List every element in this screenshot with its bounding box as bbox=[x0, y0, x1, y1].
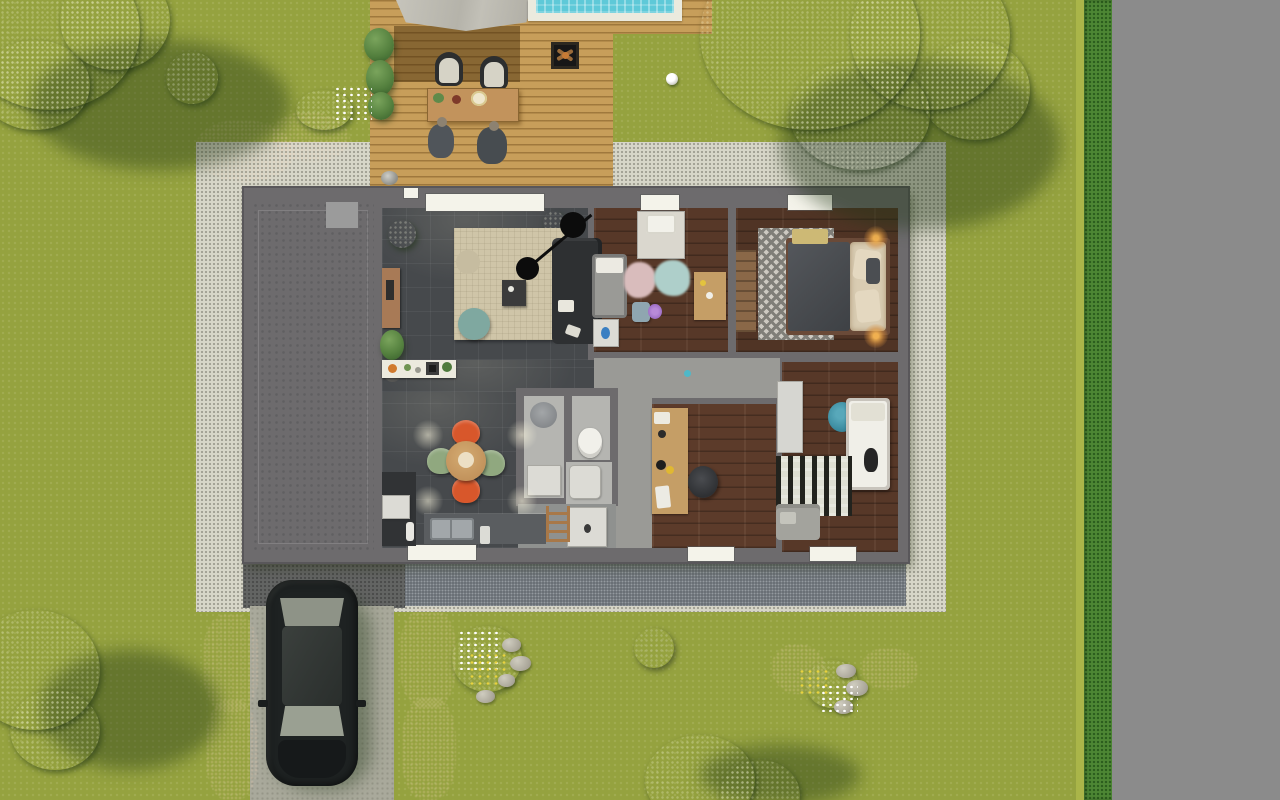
island-bowl-orange bbox=[388, 364, 397, 373]
wardrobe bbox=[778, 382, 802, 452]
fluffy-rug-blue bbox=[654, 260, 690, 296]
bed-bench bbox=[736, 250, 756, 332]
small-bush-top-left bbox=[166, 52, 218, 104]
kids-desk-toy bbox=[706, 292, 713, 299]
plate-pizza bbox=[471, 91, 487, 106]
office-printer bbox=[654, 412, 670, 424]
room-hall-vertical bbox=[614, 398, 652, 548]
bedside-lamp bbox=[864, 226, 888, 250]
kitchen-sink bbox=[430, 518, 474, 540]
island-hob bbox=[426, 362, 439, 375]
window-kitchen bbox=[408, 545, 476, 560]
tree-top-right bbox=[790, 60, 930, 170]
rock bbox=[510, 656, 531, 671]
deck-planter-grass bbox=[364, 28, 394, 62]
car-windshield bbox=[280, 706, 344, 736]
person-seated bbox=[428, 124, 454, 158]
window-office bbox=[688, 547, 734, 561]
desk-item-yellow bbox=[666, 466, 674, 474]
pouf-beige bbox=[456, 250, 480, 274]
toilet bbox=[578, 428, 602, 458]
window-bedroom-kids bbox=[641, 195, 679, 210]
soccer-ball bbox=[666, 73, 678, 85]
car-hood bbox=[278, 740, 346, 778]
bottle bbox=[406, 522, 414, 541]
pool-water bbox=[536, 0, 674, 13]
island-plant bbox=[442, 362, 452, 372]
dining-plate bbox=[458, 452, 474, 468]
office-chair bbox=[688, 466, 718, 498]
lawn-patch-right-of-deck bbox=[613, 34, 712, 142]
single-bed-pillow bbox=[851, 403, 885, 421]
red-shrub-driveway-right bbox=[402, 698, 456, 800]
changing-mat bbox=[646, 214, 676, 234]
loveseat-cushion bbox=[780, 512, 796, 524]
kids-desk-toy bbox=[700, 280, 706, 286]
yellow-throw bbox=[792, 229, 828, 244]
coffee-table-decor bbox=[508, 286, 514, 292]
coffee-table bbox=[502, 280, 526, 306]
ceiling-spotlight-glow bbox=[506, 486, 538, 516]
ceiling-spotlight-glow bbox=[412, 420, 444, 450]
window-living bbox=[426, 194, 544, 211]
accent-pillow bbox=[866, 258, 880, 284]
lounge-chair bbox=[435, 52, 463, 86]
towel-ladder bbox=[546, 506, 570, 542]
kids-bed-pillow bbox=[596, 258, 623, 273]
car-mirror-left bbox=[258, 700, 268, 707]
rain-shower-head bbox=[530, 402, 557, 428]
white-flowers bbox=[334, 86, 372, 120]
street bbox=[1112, 0, 1280, 800]
red-shrub-driveway-right bbox=[400, 608, 456, 708]
tree-top-right bbox=[920, 40, 1030, 140]
plate-green bbox=[433, 93, 444, 103]
car-rear-window bbox=[280, 598, 344, 626]
island-plant bbox=[404, 364, 411, 371]
person-head bbox=[437, 117, 447, 127]
fire-pit-ember bbox=[562, 52, 569, 59]
master-duvet bbox=[788, 242, 850, 331]
desk-papers bbox=[655, 485, 671, 508]
pendant-lamp-small bbox=[516, 257, 539, 280]
rock bbox=[476, 690, 495, 703]
hall-decor-dot bbox=[684, 370, 691, 377]
person-seated bbox=[477, 127, 507, 164]
kitchen-appliance bbox=[383, 496, 409, 518]
car-roof bbox=[282, 626, 342, 706]
window-bedroom-single bbox=[810, 547, 856, 561]
ceiling-spotlight-glow bbox=[506, 420, 538, 450]
rock bbox=[836, 664, 856, 678]
desk-cup bbox=[658, 430, 666, 438]
desk-lamp bbox=[656, 460, 666, 470]
flower-bed-yellow bbox=[798, 668, 828, 694]
garage-entry-mat bbox=[326, 202, 358, 228]
pouf-teal bbox=[458, 308, 490, 340]
red-shrub-bed bbox=[862, 648, 918, 690]
plate-red bbox=[452, 95, 461, 104]
bedside-lamp bbox=[864, 324, 888, 348]
lounge-chair bbox=[480, 56, 508, 90]
washbasin bbox=[570, 466, 600, 498]
kettle-grill bbox=[381, 171, 398, 185]
bag-on-bed bbox=[864, 448, 878, 472]
floor-plan-scene bbox=[0, 0, 1280, 800]
sideboard-decor bbox=[386, 280, 394, 300]
floor-plant bbox=[380, 330, 404, 360]
tree-bottom-left bbox=[10, 690, 100, 770]
car-mirror-right bbox=[356, 700, 366, 707]
person-head bbox=[489, 121, 499, 131]
ceiling-spotlight-glow bbox=[412, 486, 444, 516]
drain-gravel-strip bbox=[378, 556, 906, 606]
sink-divider bbox=[450, 518, 452, 540]
hedge bbox=[1084, 0, 1114, 800]
front-door bbox=[404, 188, 418, 198]
fire-pit bbox=[551, 42, 579, 69]
gray-green-bush bbox=[634, 628, 674, 668]
room-hall bbox=[594, 358, 780, 398]
shower-drain bbox=[584, 524, 591, 533]
plant-pot bbox=[388, 220, 416, 248]
garage-floor-marking bbox=[258, 210, 368, 544]
rock bbox=[498, 674, 515, 687]
blue-vase bbox=[601, 327, 610, 339]
purple-flowers bbox=[648, 304, 662, 319]
pendant-lamp-large bbox=[560, 212, 586, 238]
sofa-pillow bbox=[558, 300, 574, 312]
pillow bbox=[854, 289, 881, 323]
rock bbox=[502, 638, 521, 652]
island-bowl bbox=[415, 367, 421, 373]
canister bbox=[480, 526, 490, 544]
